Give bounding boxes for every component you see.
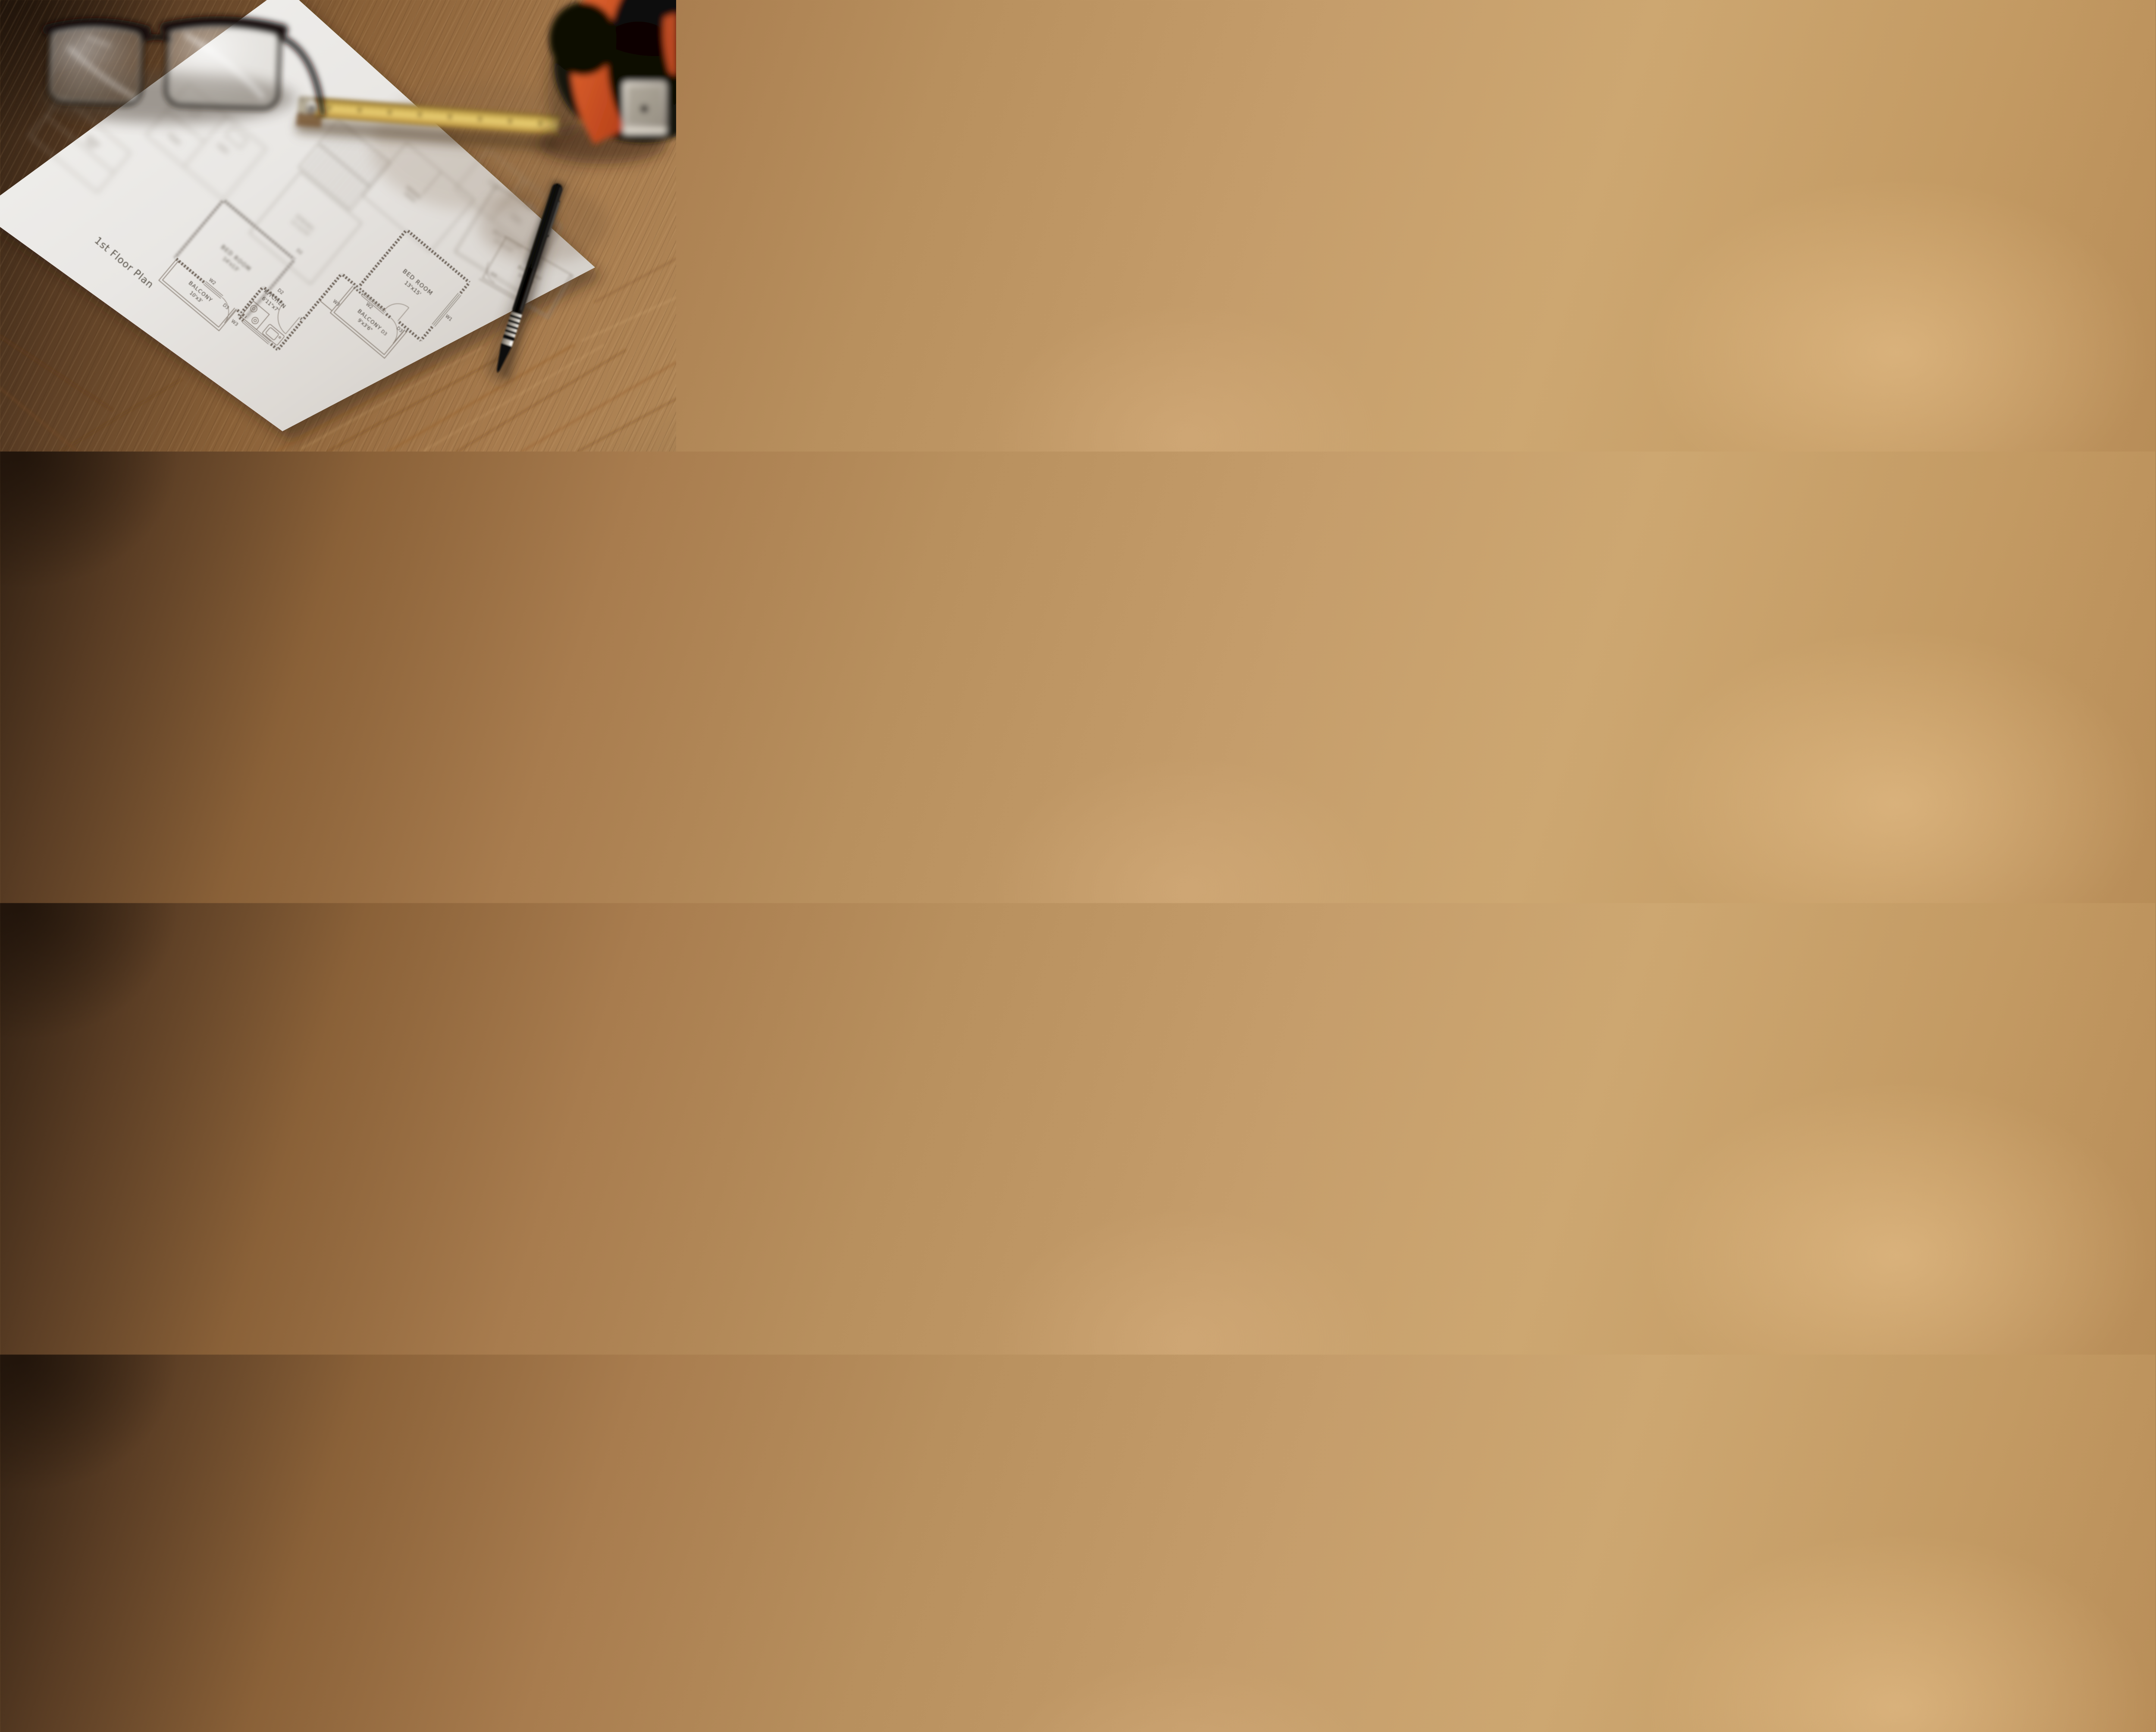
glasses-bridge bbox=[143, 37, 170, 40]
tape-clip-screw bbox=[640, 105, 648, 113]
tape-rubber-bumper bbox=[549, 2, 617, 75]
photo-scene: { "plan": { "title": "1st Floor Plan", "… bbox=[0, 0, 676, 452]
scene-artwork: DINING 11'x12'6" BED ROOM 13'x11'6" BALC… bbox=[0, 0, 676, 452]
